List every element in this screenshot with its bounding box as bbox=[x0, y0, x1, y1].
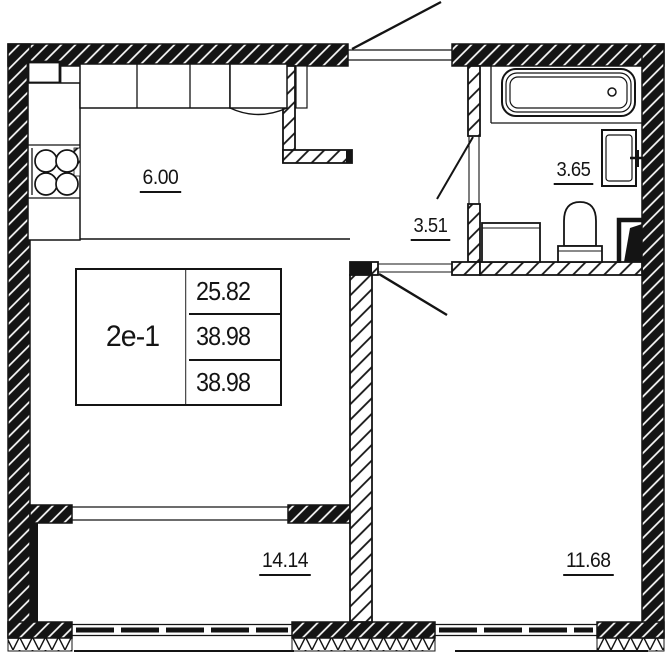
door-swing-entrance bbox=[352, 2, 441, 49]
bathtub-icon bbox=[502, 69, 635, 116]
area-value: 11.68 bbox=[566, 549, 611, 572]
partition-bedroom-top-b bbox=[452, 262, 480, 275]
insulation-zigzag-middle bbox=[292, 638, 435, 651]
wall-bottom-pier-right bbox=[597, 622, 664, 638]
unit-area-row-2: 38.98 bbox=[189, 315, 280, 360]
unit-info-table: 2е-1 25.82 38.98 38.98 bbox=[75, 268, 282, 406]
washing-machine-body bbox=[482, 223, 540, 262]
room-area-label-kitchen-living: 6.00 bbox=[140, 166, 181, 193]
vent-shaft-fill bbox=[624, 224, 642, 262]
unit-type-cell: 2е-1 bbox=[80, 270, 186, 404]
kitchen-counter-row bbox=[80, 64, 230, 108]
burner bbox=[56, 173, 78, 195]
window-bedroom bbox=[435, 625, 597, 636]
burner bbox=[35, 150, 57, 172]
partition-kitchen-arm-cap bbox=[346, 150, 352, 163]
area-value: 3.65 bbox=[556, 159, 590, 181]
partition-bathroom-bottom bbox=[480, 262, 642, 275]
room-area-label-bedroom: 11.68 bbox=[563, 549, 613, 576]
partition-corner-block bbox=[350, 262, 372, 275]
partition-bathroom-left-lower bbox=[468, 204, 480, 262]
burner bbox=[35, 173, 57, 195]
kitchen-duct-box bbox=[28, 62, 60, 83]
partition-kitchen-arm bbox=[283, 150, 352, 163]
partition-bathroom-left-upper bbox=[468, 66, 480, 136]
wall-top-right bbox=[452, 44, 664, 66]
kitchen-counter-end bbox=[230, 64, 287, 108]
wall-livingroom-top-right bbox=[288, 505, 350, 523]
counter-arc bbox=[230, 108, 287, 115]
room-area-label-hallway: 3.51 bbox=[411, 214, 451, 241]
bathtub-drain bbox=[608, 88, 616, 96]
wall-livingroom-left-face bbox=[30, 523, 38, 622]
vent-shaft-icon bbox=[619, 220, 642, 263]
window-living-room bbox=[72, 625, 292, 636]
area-value: 6.00 bbox=[143, 166, 179, 189]
unit-area-row-3: 38.98 bbox=[189, 361, 280, 404]
room-area-label-bathroom: 3.65 bbox=[554, 158, 594, 185]
insulation-zigzag-right bbox=[597, 638, 664, 651]
unit-area-value-1: 25.82 bbox=[196, 276, 250, 307]
insulation-zigzag-left bbox=[8, 638, 72, 651]
wall-bottom-pier-left bbox=[8, 622, 72, 638]
wall-left bbox=[8, 44, 30, 638]
unit-area-value-3: 38.98 bbox=[196, 367, 250, 398]
unit-area-row-1: 25.82 bbox=[189, 270, 280, 315]
wall-livingroom-top-left bbox=[30, 505, 72, 523]
door-swing-bedroom bbox=[379, 274, 447, 315]
washing-machine-icon bbox=[482, 223, 540, 262]
floor-plan: 6.00 3.51 3.65 14.14 11.68 2е-1 25.82 38… bbox=[0, 0, 670, 656]
entry-cabinet-panel bbox=[296, 66, 307, 108]
door-swing-bathroom bbox=[437, 137, 473, 199]
wall-right bbox=[642, 44, 664, 638]
wall-bottom-pier-middle bbox=[292, 622, 435, 638]
room-area-label-living-room: 14.14 bbox=[259, 549, 311, 576]
unit-areas-column: 25.82 38.98 38.98 bbox=[189, 270, 280, 404]
toilet-bowl bbox=[564, 202, 596, 246]
toilet-icon bbox=[558, 202, 602, 262]
unit-area-value-2: 38.98 bbox=[196, 321, 250, 352]
area-value: 3.51 bbox=[413, 215, 447, 237]
area-value: 14.14 bbox=[262, 549, 308, 572]
toilet-tank bbox=[558, 246, 602, 262]
burner bbox=[56, 150, 78, 172]
partition-bedroom-living-divider bbox=[350, 275, 372, 622]
